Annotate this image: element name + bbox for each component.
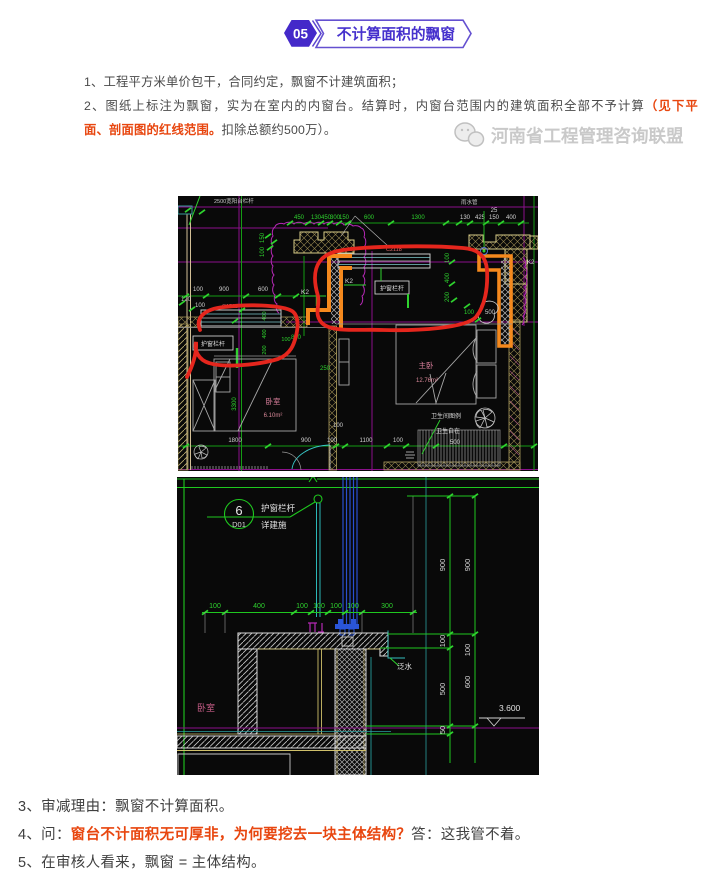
svg-text:400: 400 (262, 311, 268, 320)
svg-text:250: 250 (320, 366, 331, 372)
svg-text:100: 100 (327, 438, 338, 444)
svg-text:主卧: 主卧 (419, 360, 434, 370)
svg-text:200: 200 (445, 291, 451, 302)
svg-text:雨水管: 雨水管 (461, 198, 478, 206)
svg-text:05: 05 (293, 26, 309, 41)
svg-text:900: 900 (301, 438, 312, 444)
svg-text:500: 500 (438, 683, 447, 696)
svg-text:400: 400 (253, 603, 265, 610)
svg-text:详建施: 详建施 (261, 520, 287, 530)
svg-text:1800: 1800 (228, 438, 242, 444)
svg-text:900: 900 (463, 559, 472, 572)
svg-text:900: 900 (438, 559, 447, 572)
svg-text:卫生自在: 卫生自在 (436, 427, 460, 435)
svg-text:100: 100 (313, 603, 325, 610)
svg-text:6.10m²: 6.10m² (264, 413, 283, 419)
svg-text:2500宽阳台栏杆: 2500宽阳台栏杆 (214, 197, 254, 205)
svg-text:3300: 3300 (232, 397, 238, 411)
svg-text:100: 100 (296, 603, 308, 610)
svg-text:450: 450 (294, 215, 305, 221)
svg-text:500: 500 (450, 440, 461, 446)
svg-text:K2: K2 (527, 260, 535, 266)
svg-text:100: 100 (393, 438, 404, 444)
svg-text:卧室: 卧室 (197, 702, 215, 713)
svg-text:100: 100 (464, 310, 475, 316)
svg-text:卧室: 卧室 (266, 396, 281, 406)
svg-text:3.600: 3.600 (499, 703, 521, 713)
svg-text:400: 400 (445, 272, 451, 283)
svg-text:25: 25 (491, 208, 498, 214)
svg-text:护窗栏杆: 护窗栏杆 (261, 503, 296, 513)
svg-text:D01: D01 (232, 520, 246, 529)
svg-text:K2: K2 (345, 278, 353, 285)
svg-text:12.76m²: 12.76m² (416, 378, 438, 384)
svg-text:1300: 1300 (411, 215, 425, 221)
svg-text:600: 600 (463, 676, 472, 689)
svg-text:500: 500 (485, 310, 496, 316)
svg-text:600: 600 (258, 287, 269, 293)
svg-text:150: 150 (489, 215, 500, 221)
svg-text:100: 100 (193, 287, 204, 293)
svg-text:300: 300 (381, 603, 393, 610)
svg-text:100: 100 (347, 603, 359, 610)
svg-text:100: 100 (445, 252, 451, 263)
svg-text:1100: 1100 (360, 438, 374, 444)
svg-text:130: 130 (460, 215, 471, 221)
svg-text:50: 50 (438, 726, 447, 734)
svg-text:150: 150 (339, 215, 350, 221)
svg-text:100: 100 (463, 644, 472, 657)
svg-text:100: 100 (281, 337, 290, 343)
svg-text:不计算面积的飘窗: 不计算面积的飘窗 (337, 25, 456, 43)
svg-text:100: 100 (260, 246, 266, 257)
svg-text:泛水: 泛水 (397, 661, 412, 671)
svg-text:100: 100 (333, 423, 344, 429)
svg-text:100: 100 (438, 635, 447, 648)
svg-text:400: 400 (506, 215, 517, 221)
svg-text:卫生间图例: 卫生间图例 (431, 412, 461, 420)
svg-text:护窗栏杆: 护窗栏杆 (201, 340, 225, 348)
svg-text:400: 400 (262, 329, 268, 338)
svg-text:900: 900 (219, 287, 230, 293)
svg-text:K2: K2 (301, 289, 309, 296)
svg-text:100: 100 (195, 303, 206, 309)
svg-text:护窗栏杆: 护窗栏杆 (380, 285, 404, 293)
svg-text:600: 600 (364, 215, 375, 221)
svg-text:100: 100 (209, 603, 221, 610)
svg-text:100: 100 (330, 603, 342, 610)
svg-text:200: 200 (262, 345, 268, 354)
svg-text:6: 6 (235, 503, 242, 518)
